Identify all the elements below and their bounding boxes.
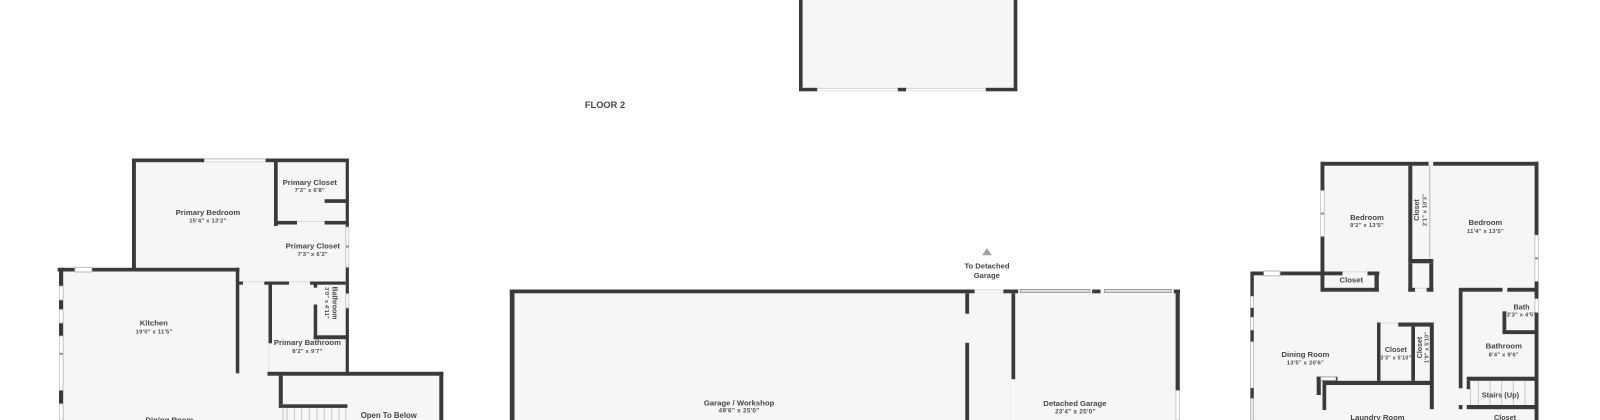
svg-text:49'6" x 25'0": 49'6" x 25'0" [719,408,760,415]
svg-text:Bedroom: Bedroom [1350,213,1384,222]
svg-text:3'3" x 5'10": 3'3" x 5'10" [1380,355,1411,361]
svg-text:15'4" x 13'2": 15'4" x 13'2" [189,219,226,225]
svg-text:Dining Room: Dining Room [145,416,193,420]
svg-text:13'5" x 20'6": 13'5" x 20'6" [1287,360,1324,366]
svg-text:Primary Closet: Primary Closet [286,242,341,251]
svg-text:Bath: Bath [1514,303,1530,312]
svg-text:Dining Room: Dining Room [1281,350,1329,359]
svg-text:3'0" x 4'11": 3'0" x 4'11" [323,287,329,319]
svg-text:Primary Closet: Primary Closet [283,178,338,187]
svg-text:9'2" x 13'5": 9'2" x 13'5" [1350,223,1384,229]
svg-text:Primary Bathroom: Primary Bathroom [274,338,341,347]
svg-text:FLOOR 2: FLOOR 2 [585,100,625,110]
svg-text:11'4" x 13'5": 11'4" x 13'5" [1467,229,1504,235]
svg-text:Primary Bedroom: Primary Bedroom [176,208,241,217]
svg-text:23'4" x 25'0": 23'4" x 25'0" [1055,409,1096,416]
svg-text:Stairs (Up): Stairs (Up) [1482,391,1520,400]
svg-text:Laundry Room: Laundry Room [1350,413,1404,420]
svg-text:19'0" x 11'5": 19'0" x 11'5" [136,330,173,336]
svg-text:2'1" x 10'3": 2'1" x 10'3" [1422,194,1428,226]
svg-text:8'2" x 9'7": 8'2" x 9'7" [292,349,322,355]
svg-text:Bathroom: Bathroom [1486,342,1522,351]
svg-text:Closet: Closet [1385,345,1408,354]
svg-text:Open To Below: Open To Below [361,411,418,420]
svg-text:Closet: Closet [1414,199,1421,221]
svg-text:Closet: Closet [1417,336,1424,358]
svg-text:8'4" x 9'6": 8'4" x 9'6" [1489,352,1519,358]
svg-text:Closet: Closet [1340,276,1364,285]
svg-text:7'3" x 6'8": 7'3" x 6'8" [295,188,325,194]
svg-text:1'9" x 5'10": 1'9" x 5'10" [1424,332,1430,363]
svg-text:Kitchen: Kitchen [140,319,168,328]
svg-text:Garage / Workshop: Garage / Workshop [704,399,775,408]
svg-text:To Detached: To Detached [964,261,1009,270]
svg-text:3'3" x 4'5": 3'3" x 4'5" [1507,312,1537,318]
svg-text:Bedroom: Bedroom [1469,218,1503,227]
svg-text:Detached Garage: Detached Garage [1043,399,1107,408]
svg-text:Closet: Closet [1494,413,1517,420]
svg-text:7'3" x 6'2": 7'3" x 6'2" [298,252,328,258]
svg-text:Garage: Garage [974,271,1000,280]
svg-text:Bathroom: Bathroom [331,286,338,319]
